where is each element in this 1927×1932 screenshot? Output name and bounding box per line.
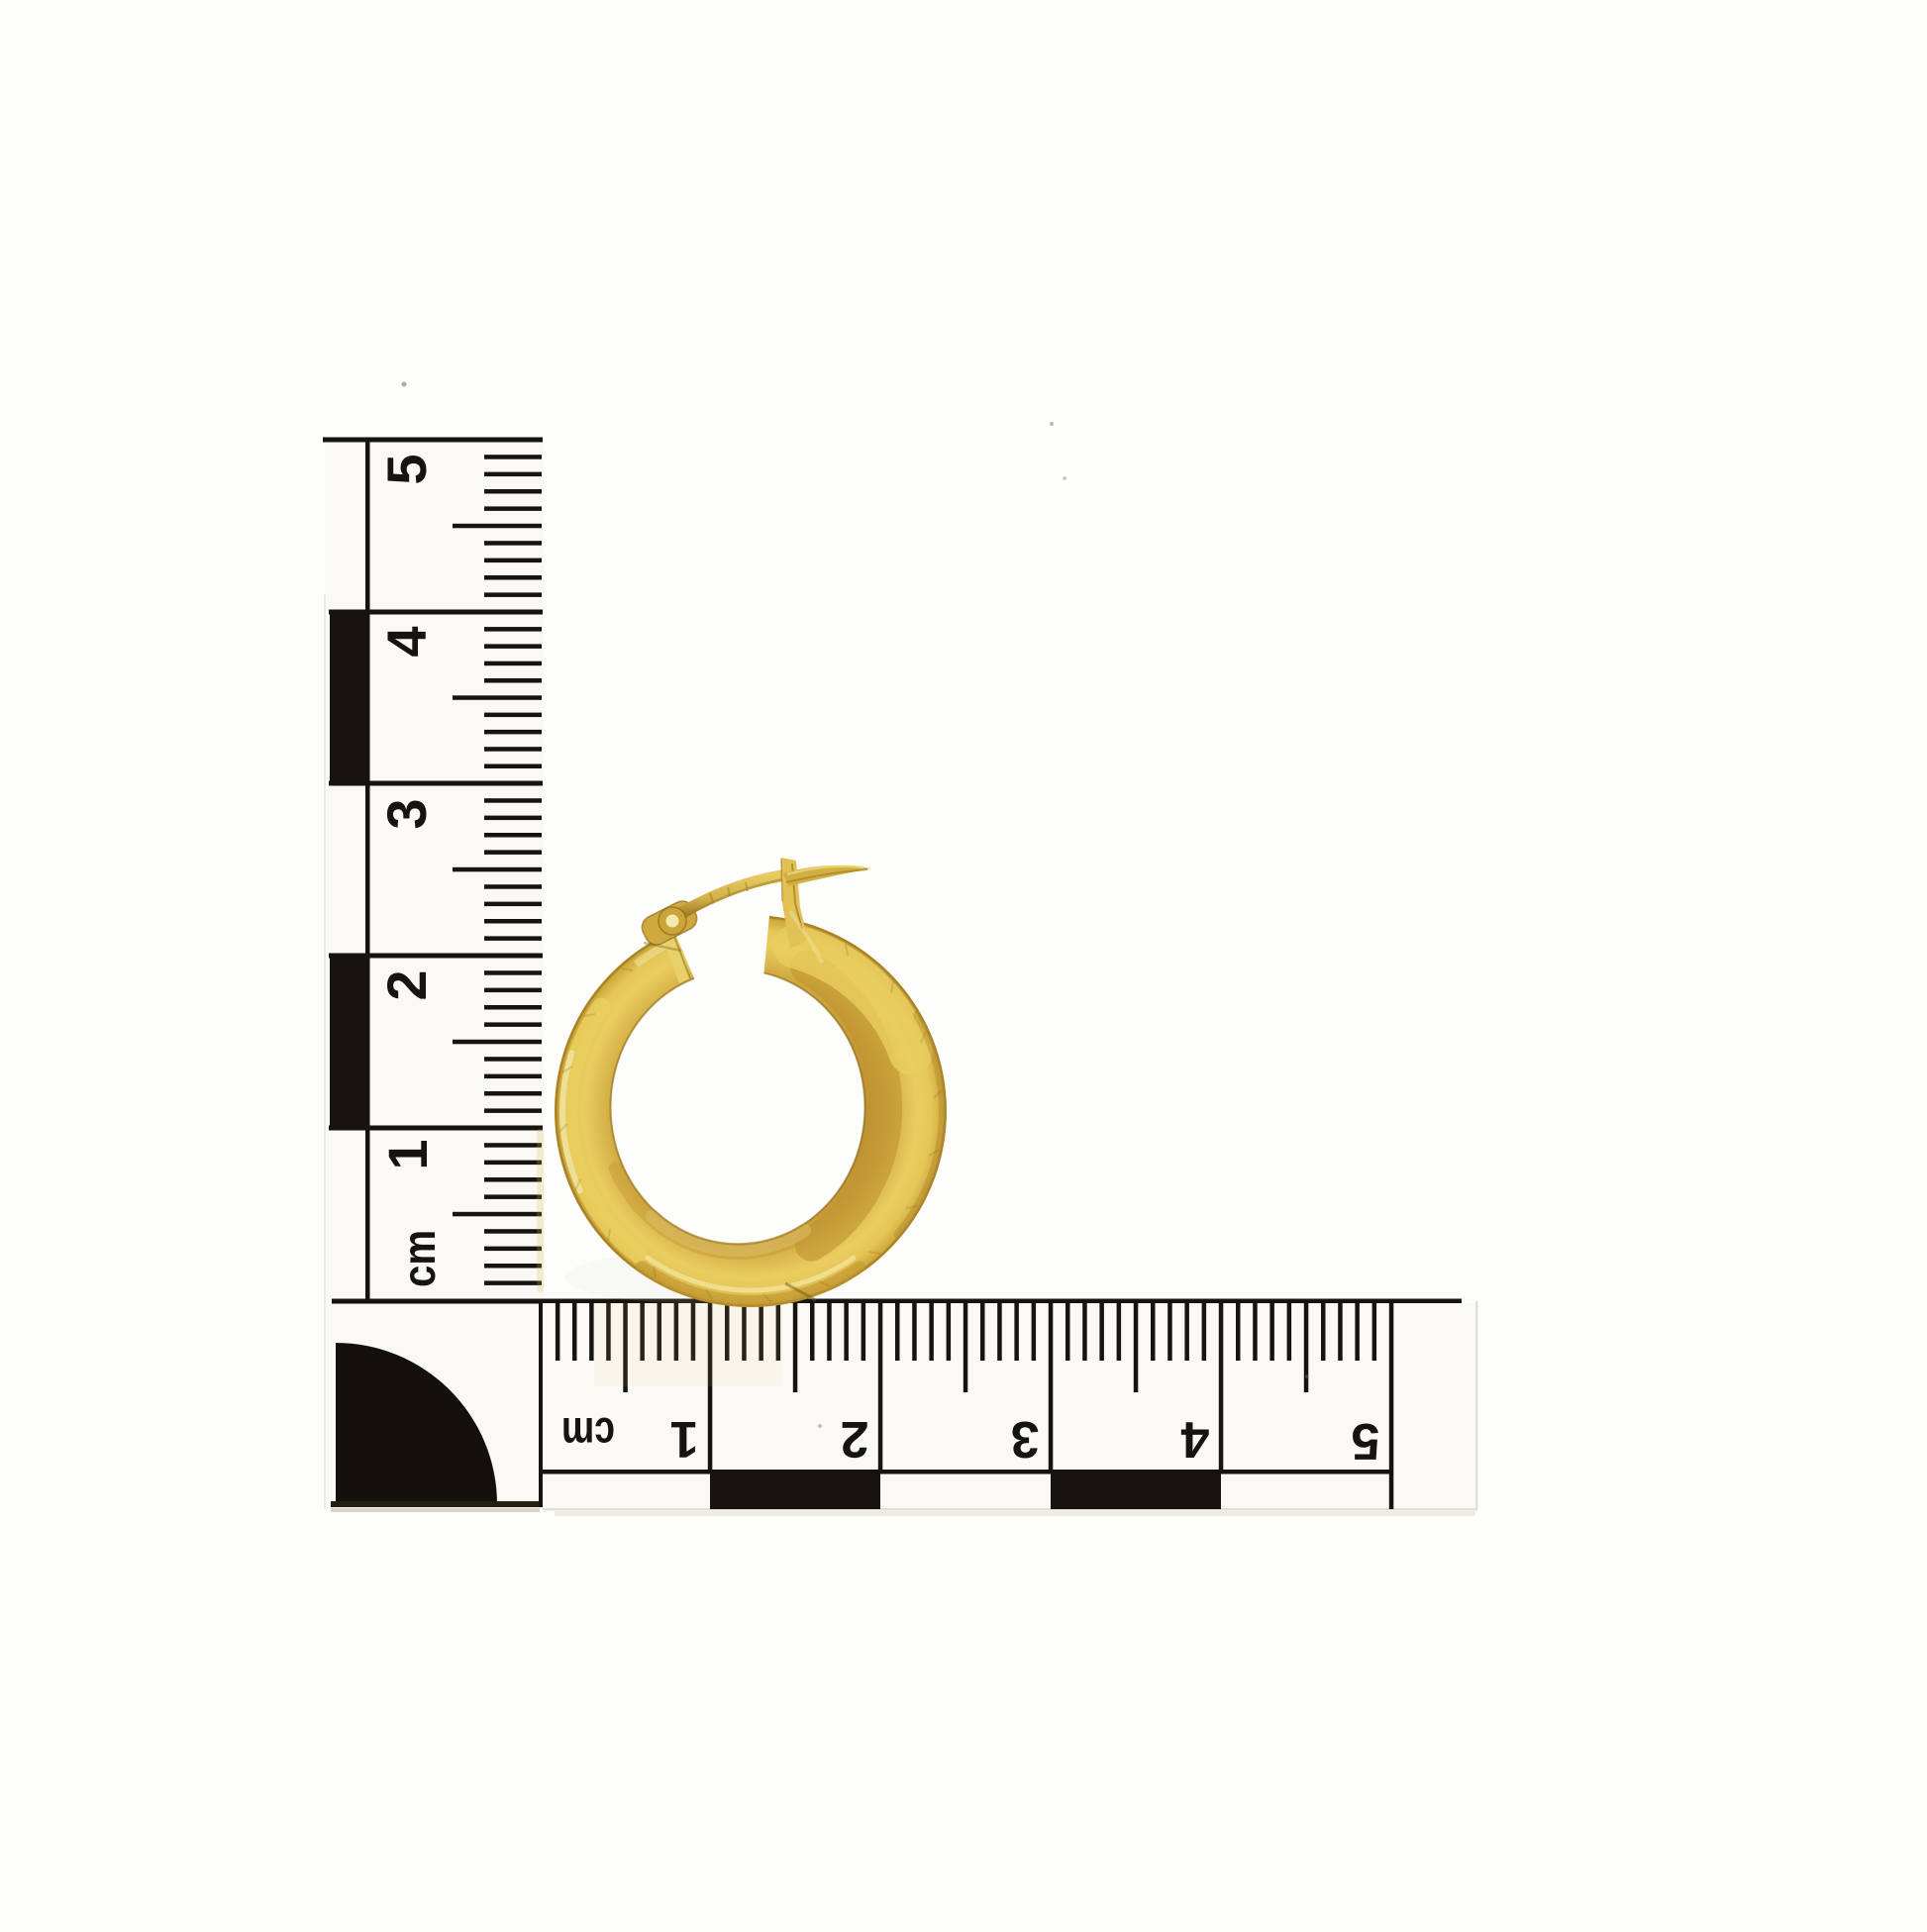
svg-text:2: 2 — [841, 1410, 869, 1468]
svg-text:2: 2 — [375, 969, 438, 1000]
svg-text:4: 4 — [1180, 1410, 1209, 1468]
svg-text:3: 3 — [1011, 1410, 1040, 1468]
svg-text:1: 1 — [670, 1410, 699, 1468]
svg-text:3: 3 — [375, 798, 438, 829]
svg-text:1: 1 — [376, 1139, 439, 1169]
svg-text:5: 5 — [1352, 1412, 1380, 1470]
svg-text:cm: cm — [561, 1408, 615, 1460]
svg-text:4: 4 — [375, 626, 438, 657]
svg-text:cm: cm — [393, 1230, 445, 1287]
svg-text:5: 5 — [375, 454, 438, 484]
